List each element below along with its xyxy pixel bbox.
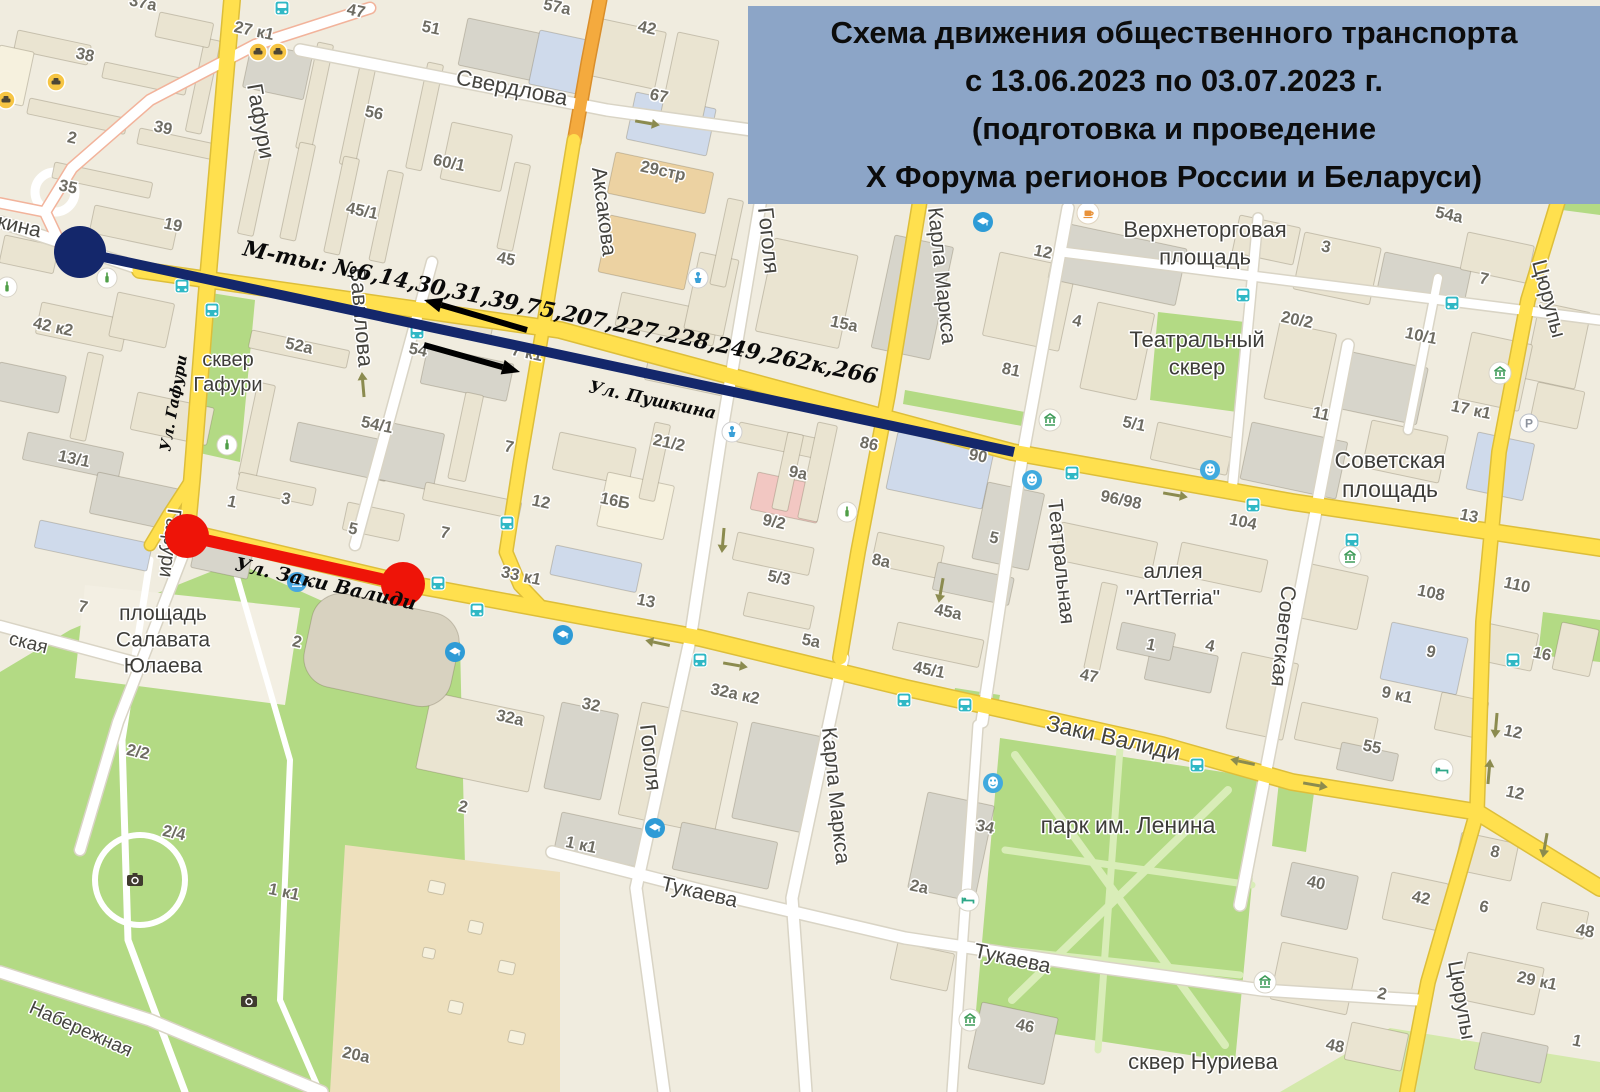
bus-icon [275,1,289,15]
museum-icon [1489,362,1511,384]
place-label: площадьСалаватаЮлаева [116,602,211,678]
building-number-label: 47 [345,0,367,21]
building-number-label: 48 [1574,920,1596,941]
title-line-2: с 13.06.2023 по 03.07.2023 г. [965,57,1383,105]
building [468,920,484,935]
store-icon [837,502,857,522]
building-number-label: 47 [1078,665,1100,686]
bus-icon [1345,533,1359,547]
bus-icon [431,576,445,590]
bus-icon [1190,758,1204,772]
building-number-label: 51 [420,17,442,38]
building-number-label: 19 [162,214,184,235]
building-number-label: 39 [152,117,174,138]
building-number-label: 13 [1458,505,1480,526]
building-number-label: 86 [858,433,880,454]
traffic-icon [47,73,65,91]
bus-icon [693,653,707,667]
building-number-label: 16 [1531,643,1553,664]
building-number-label: 67 [648,85,670,106]
route-endpoint-marker [54,226,106,278]
building-number-label: 12 [1032,241,1054,262]
segment-endpoint-marker [165,514,209,558]
store-icon [0,277,17,297]
building [428,880,446,895]
hotel-icon [957,889,979,911]
building-number-label: 13 [635,590,657,611]
bus-icon [1065,466,1079,480]
building-number-label: 81 [1000,359,1022,380]
bus-icon [500,516,514,530]
building-number-label: 48 [1324,1035,1346,1056]
bus-icon [470,603,484,617]
museum-icon [959,1009,981,1031]
title-line-1: Схема движения общественного транспорта [831,9,1518,57]
museum-icon [1339,546,1361,568]
transport-scheme-map: PПушкинаСвердловаАксаковаГафуриГафуриВав… [0,0,1600,1092]
title-line-3: (подготовка и проведение [972,105,1376,153]
building-number-label: 38 [74,44,96,65]
building-number-label: 42 [1410,887,1432,908]
building [498,960,516,975]
bus-icon [897,693,911,707]
building-number-label: 11 [1311,403,1332,424]
bus-icon [1236,288,1250,302]
place-label: сквер Нуриева [1128,1049,1278,1074]
place-label: парк им. Ленина [1041,812,1216,838]
education-icon [553,625,573,645]
bus-icon [1246,498,1260,512]
education-icon [445,642,465,662]
store-icon [97,268,117,288]
education-icon [973,212,993,232]
building [508,1030,526,1045]
bus-icon [205,303,219,317]
building-number-label: 12 [530,491,552,512]
building-number-label: 40 [1305,872,1327,893]
bus-icon [175,279,189,293]
bus-icon [958,698,972,712]
traffic-icon [269,43,287,61]
scheme-title: Схема движения общественного транспорта … [748,6,1600,204]
museum-icon [1039,409,1061,431]
building [448,1000,464,1015]
building-number-label: 55 [1361,736,1383,757]
theater-icon [1200,460,1220,480]
building-number-label: 12 [1504,782,1526,803]
pharmacy-icon [688,268,708,288]
building-number-label: 42 [636,17,658,38]
building-number-label: 35 [57,176,79,197]
title-line-4: X Форума регионов России и Беларуси) [866,153,1482,201]
building [422,947,436,959]
traffic-icon [249,43,267,61]
building-number-label: 12 [1502,721,1524,742]
store-icon [217,435,237,455]
building-number-label: 45 [495,248,517,269]
education-icon [645,818,665,838]
coffee-icon [1077,202,1099,224]
bus-icon [1506,653,1520,667]
parking-icon: P [1520,414,1538,432]
museum-icon [1254,971,1276,993]
theater-icon [983,773,1003,793]
pharmacy-icon [722,422,742,442]
theater-icon [1022,470,1042,490]
bus-icon [1445,296,1459,310]
hotel-icon [1431,759,1453,781]
svg-text:P: P [1525,417,1533,431]
building-number-label: 56 [363,102,385,123]
building-number-label: 46 [1014,1015,1036,1036]
building-number-label: 32 [580,694,602,715]
traffic-icon [0,91,15,109]
